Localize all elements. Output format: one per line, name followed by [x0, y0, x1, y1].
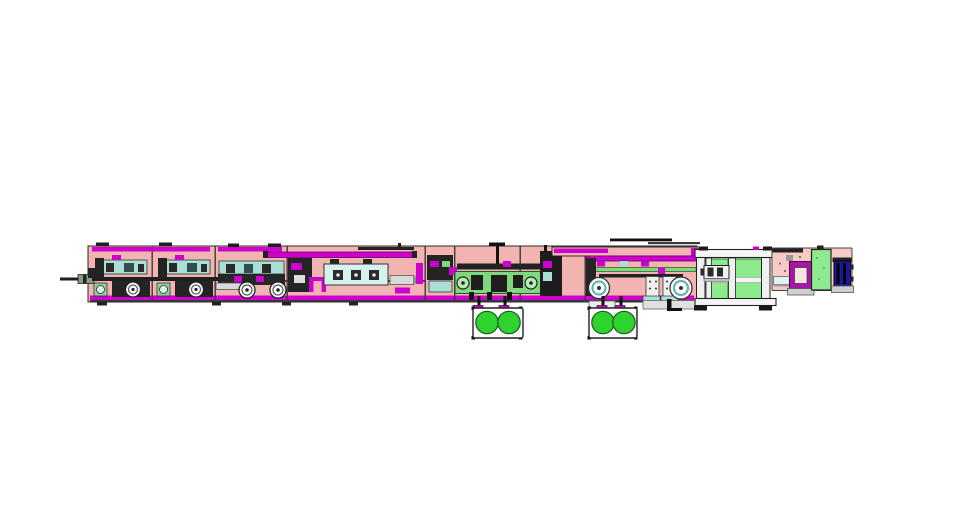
window-detail: [226, 264, 235, 273]
window-detail: [262, 264, 271, 273]
top-rail-segment: [218, 247, 282, 252]
stamp-dot: [666, 281, 668, 283]
machine-foot: [97, 302, 107, 306]
pulley-hub: [597, 286, 601, 290]
window-detail: [138, 264, 144, 272]
stamp-block: [646, 277, 659, 297]
stamp-dot: [649, 281, 651, 283]
overhead-rod: [358, 247, 414, 250]
top-bracket: [330, 259, 339, 264]
wheel-hub: [194, 288, 197, 291]
top-bracket: [159, 243, 172, 247]
module-divider: [152, 246, 153, 302]
sight-window: [429, 281, 452, 292]
process-module: [491, 275, 507, 292]
end-top-bar: [772, 249, 803, 253]
carriage-lip: [704, 279, 729, 282]
wheel-hub: [245, 288, 249, 292]
control-indicator: [336, 273, 340, 277]
carriage-hook: [701, 269, 705, 276]
support-leg: [487, 292, 492, 300]
machine-foot: [212, 302, 221, 306]
magenta-fitting: [234, 276, 242, 282]
gantry-clamp: [763, 247, 772, 251]
transfer-rail: [586, 256, 698, 261]
window-detail: [106, 263, 114, 272]
carriage-slot: [708, 268, 714, 277]
green-fitting: [442, 261, 450, 267]
infeed-shaft-band: [83, 275, 87, 284]
transfer-rail: [267, 252, 413, 258]
cabinet-speck: [816, 257, 818, 259]
wheel-hub: [131, 288, 134, 291]
carriage-slot: [717, 268, 723, 277]
motor-tab: [850, 265, 854, 270]
support-leg: [507, 292, 512, 300]
pulley-hub: [679, 286, 683, 290]
top-rail-segment: [92, 247, 210, 252]
window-detail: [201, 264, 207, 272]
stamp-dot: [649, 288, 651, 290]
machine-foot: [282, 302, 291, 306]
top-bracket: [268, 244, 281, 248]
press-base: [788, 289, 815, 296]
green-cabinet: [812, 250, 832, 291]
roller-hub: [461, 281, 465, 285]
window-detail: [169, 263, 177, 272]
rod-connector: [398, 243, 401, 250]
motor-unit: [834, 261, 851, 287]
window-detail: [244, 264, 253, 273]
window-detail: [187, 263, 197, 272]
rail-endcap: [412, 251, 417, 258]
magenta-fitting: [658, 268, 665, 274]
frame-post: [95, 258, 104, 278]
frame-post: [158, 258, 167, 278]
support-leg: [469, 292, 474, 300]
magenta-fitting: [291, 263, 302, 270]
output-tray: [774, 277, 792, 285]
clamp-bracket-slot: [314, 281, 322, 292]
reel-disc: [498, 311, 520, 333]
gray-block: [786, 255, 793, 261]
magenta-fitting: [543, 261, 552, 268]
cad-canvas: [0, 0, 960, 532]
magenta-fitting: [175, 255, 184, 260]
upper-beam-rail: [554, 249, 608, 254]
stamp-dot: [655, 281, 657, 283]
page-background: [0, 0, 960, 532]
process-module: [471, 275, 483, 290]
magenta-post: [416, 263, 423, 284]
panel-speck: [779, 263, 781, 265]
cabinet-speck: [818, 278, 820, 280]
motor-stripe: [843, 263, 846, 284]
top-bracket: [363, 259, 372, 264]
window-detail: [124, 263, 134, 272]
stamp-dot: [655, 288, 657, 290]
cabinet-speck: [823, 267, 825, 269]
magenta-fitting: [503, 261, 511, 267]
wheel-hub: [276, 288, 280, 292]
output-tray-base: [774, 285, 792, 287]
control-indicator: [372, 273, 376, 277]
magenta-fitting: [641, 262, 649, 267]
panel-detail: [294, 275, 305, 283]
gantry-foot: [759, 306, 772, 311]
gantry-post: [729, 258, 736, 302]
top-bracket: [228, 244, 239, 248]
panel-divider: [735, 278, 762, 283]
overhead-rod: [648, 242, 700, 244]
antenna-cap: [489, 243, 505, 247]
motor-tab: [850, 277, 854, 282]
tower-window: [543, 272, 552, 281]
magenta-fitting: [753, 247, 759, 251]
top-bracket: [96, 243, 109, 247]
gantry-beam: [695, 299, 776, 306]
teal-fitting: [620, 261, 628, 267]
panel-speck: [784, 270, 786, 272]
module-divider: [425, 246, 426, 302]
tower-mast: [544, 245, 547, 252]
process-top-bar: [457, 264, 541, 270]
machine-foot: [349, 302, 358, 306]
magenta-fitting: [112, 255, 121, 260]
module-divider: [215, 246, 216, 302]
gantry-beam: [695, 250, 776, 258]
stamp-dot: [666, 288, 668, 290]
pump-port: [97, 286, 105, 294]
cabinet-vent: [817, 246, 824, 250]
pump-port: [160, 286, 168, 294]
conveyor-bar: [588, 268, 696, 272]
reel-disc: [592, 311, 614, 333]
gray-cylinder: [390, 276, 414, 285]
rail-endcap: [263, 251, 268, 258]
reel-disc: [476, 311, 498, 333]
roller-hub: [529, 281, 533, 285]
gantry-foot: [694, 306, 707, 311]
motor-stripe: [837, 263, 840, 284]
process-module: [513, 275, 523, 288]
antenna-rod: [496, 246, 499, 266]
control-indicator: [354, 273, 358, 277]
magenta-fitting: [597, 262, 605, 267]
press-window: [795, 268, 808, 284]
infeed-clamp: [88, 268, 96, 278]
magenta-fitting: [256, 276, 264, 282]
panel-speck: [799, 256, 801, 258]
motor-base: [832, 286, 854, 293]
gray-cylinder: [216, 283, 242, 290]
support-bracket: [667, 308, 682, 311]
magenta-fitting: [395, 288, 410, 294]
magenta-fitting: [430, 261, 439, 267]
reel-disc: [613, 311, 635, 333]
gantry-clamp: [699, 247, 708, 251]
overhead-rod: [610, 239, 672, 242]
